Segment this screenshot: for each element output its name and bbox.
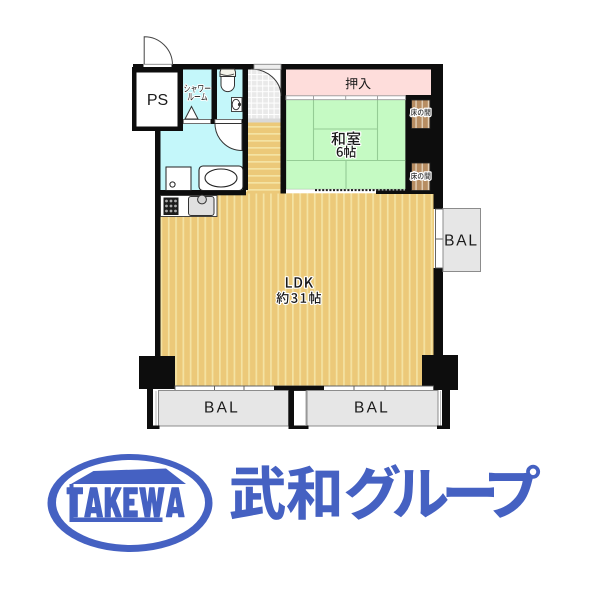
svg-text:BAL: BAL — [354, 400, 390, 417]
svg-text:BAL: BAL — [444, 233, 479, 250]
svg-text:BAL: BAL — [204, 400, 240, 417]
svg-text:PS: PS — [147, 92, 168, 109]
